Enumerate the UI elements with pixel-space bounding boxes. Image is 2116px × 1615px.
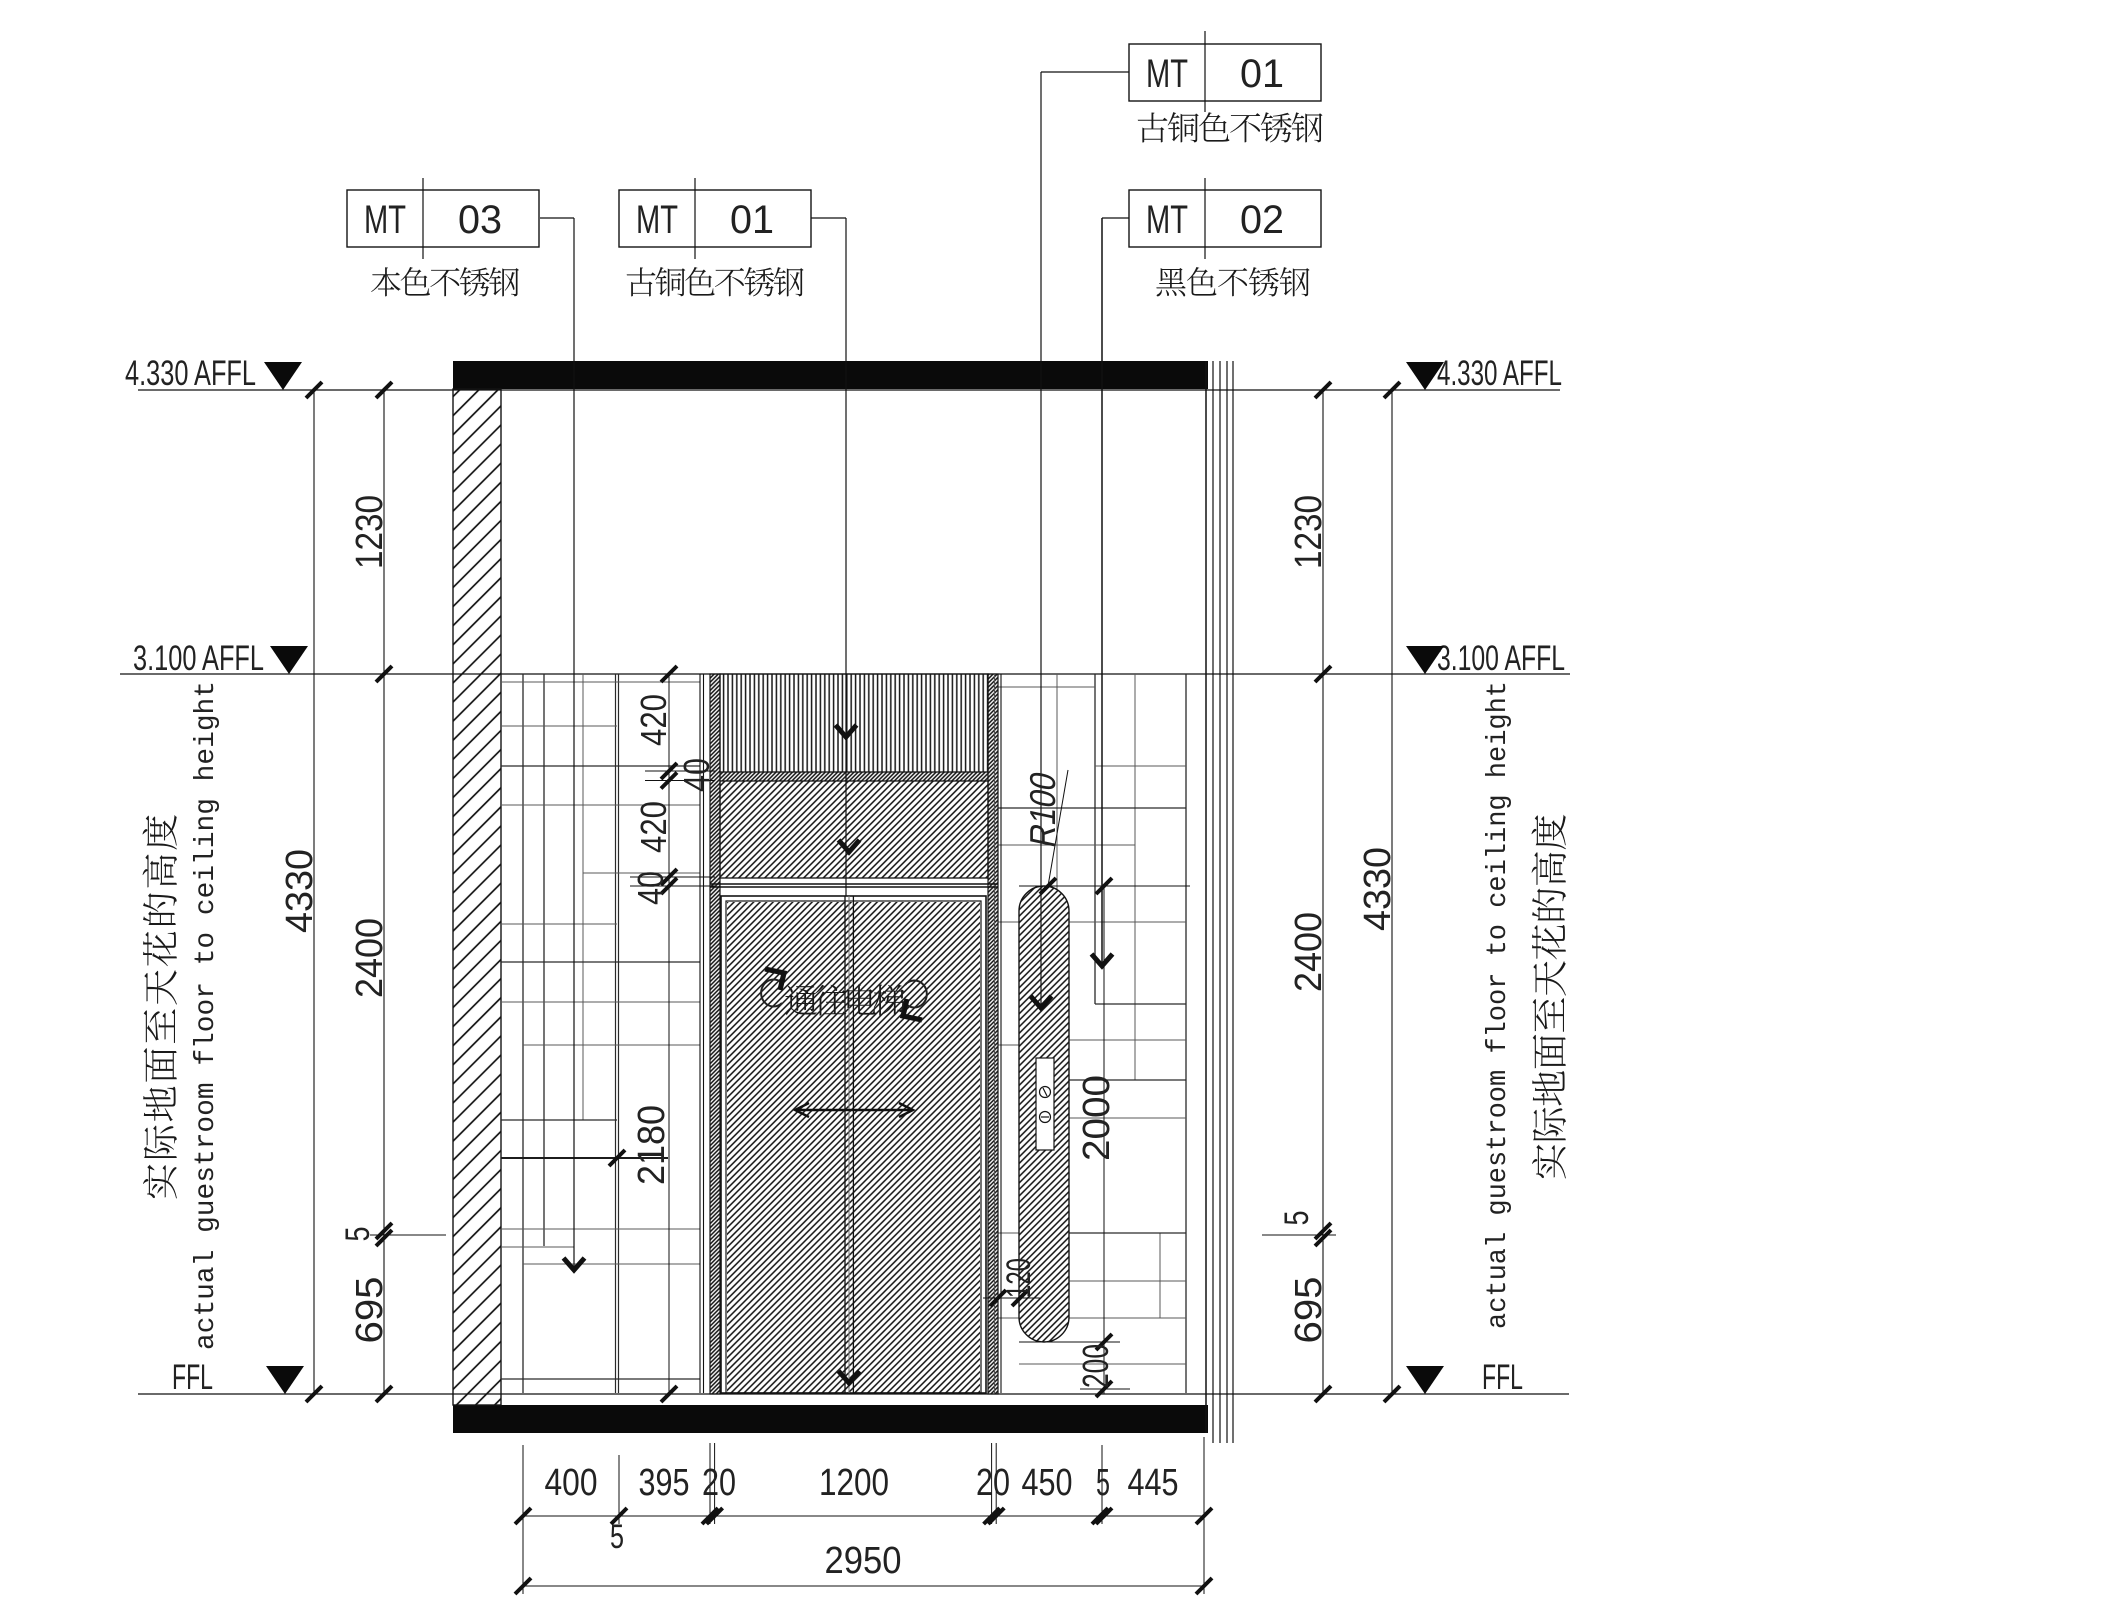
svg-text:420: 420 xyxy=(633,694,674,746)
svg-text:4330: 4330 xyxy=(1357,847,1399,931)
svg-text:395: 395 xyxy=(639,1462,690,1504)
svg-text:FFL: FFL xyxy=(172,1358,213,1397)
svg-text:MT: MT xyxy=(1146,198,1188,242)
svg-text:FFL: FFL xyxy=(1482,1358,1523,1397)
svg-text:MT: MT xyxy=(636,198,678,242)
svg-text:2000: 2000 xyxy=(1076,1075,1118,1161)
svg-text:40: 40 xyxy=(676,758,717,792)
svg-text:2950: 2950 xyxy=(825,1540,902,1582)
svg-text:4330: 4330 xyxy=(279,849,321,933)
svg-text:2180: 2180 xyxy=(631,1105,673,1185)
svg-text:01: 01 xyxy=(730,198,774,242)
svg-text:40: 40 xyxy=(630,871,671,905)
svg-text:01: 01 xyxy=(1240,52,1284,96)
svg-text:695: 695 xyxy=(349,1277,391,1344)
svg-text:3.100 AFFL: 3.100 AFFL xyxy=(133,639,264,678)
svg-text:R100: R100 xyxy=(1022,768,1063,851)
svg-text:445: 445 xyxy=(1128,1462,1179,1504)
svg-text:200: 200 xyxy=(1075,1344,1116,1388)
svg-text:2400: 2400 xyxy=(1288,912,1330,992)
svg-text:4.330 AFFL: 4.330 AFFL xyxy=(1437,354,1562,393)
svg-text:5: 5 xyxy=(1278,1211,1316,1226)
svg-text:4.330 AFFL: 4.330 AFFL xyxy=(125,354,256,393)
svg-text:400: 400 xyxy=(545,1462,598,1504)
svg-text:actual guestroom floor to ceil: actual guestroom floor to ceiling height xyxy=(1483,681,1514,1329)
svg-text:120: 120 xyxy=(1000,1258,1038,1298)
svg-text:5: 5 xyxy=(339,1227,377,1242)
svg-text:20: 20 xyxy=(702,1462,736,1504)
svg-text:695: 695 xyxy=(1288,1277,1330,1344)
svg-text:1230: 1230 xyxy=(349,495,391,569)
svg-text:1200: 1200 xyxy=(819,1462,889,1504)
svg-text:5: 5 xyxy=(610,1518,624,1556)
svg-text:450: 450 xyxy=(1022,1462,1073,1504)
svg-text:MT: MT xyxy=(364,198,406,242)
svg-text:03: 03 xyxy=(458,198,502,242)
svg-text:5: 5 xyxy=(1096,1462,1110,1504)
svg-text:actual guestroom floor to ceil: actual guestroom floor to ceiling height xyxy=(191,681,222,1350)
svg-text:MT: MT xyxy=(1146,52,1188,96)
svg-text:420: 420 xyxy=(633,801,674,853)
svg-text:1230: 1230 xyxy=(1288,495,1330,569)
svg-text:2400: 2400 xyxy=(349,918,391,998)
svg-text:02: 02 xyxy=(1240,198,1284,242)
svg-text:3.100 AFFL: 3.100 AFFL xyxy=(1437,639,1565,678)
svg-text:20: 20 xyxy=(976,1462,1010,1504)
